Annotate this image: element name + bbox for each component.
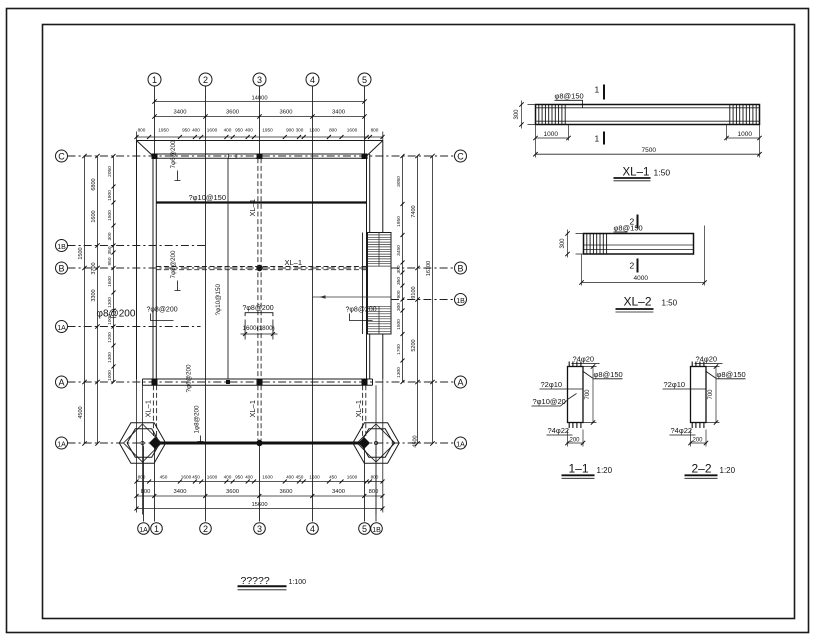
svg-text:3600: 3600 bbox=[226, 489, 239, 495]
svg-text:1:100: 1:100 bbox=[289, 579, 307, 586]
svg-text:1300: 1300 bbox=[107, 352, 113, 363]
svg-text:9100: 9100 bbox=[411, 286, 417, 298]
svg-text:1600: 1600 bbox=[309, 475, 320, 480]
svg-text:1700: 1700 bbox=[396, 344, 402, 355]
svg-text:7500: 7500 bbox=[642, 147, 657, 154]
svg-text:7φ6@200: 7φ6@200 bbox=[170, 140, 177, 168]
svg-text:950: 950 bbox=[182, 128, 190, 133]
svg-text:1:20: 1:20 bbox=[597, 466, 613, 475]
svg-text:800: 800 bbox=[141, 489, 151, 495]
svg-text:1:50: 1:50 bbox=[662, 299, 678, 308]
svg-text:1: 1 bbox=[152, 75, 157, 85]
svg-text:350: 350 bbox=[396, 277, 402, 285]
svg-text:300: 300 bbox=[514, 109, 520, 120]
svg-text:XL–1: XL–1 bbox=[354, 400, 363, 418]
svg-text:2–2: 2–2 bbox=[692, 462, 712, 476]
svg-text:?φ10@20: ?φ10@20 bbox=[533, 397, 566, 406]
svg-text:A: A bbox=[58, 378, 64, 388]
svg-text:700: 700 bbox=[585, 389, 591, 400]
svg-text:3: 3 bbox=[257, 75, 262, 85]
svg-text:1600: 1600 bbox=[262, 475, 273, 480]
svg-text:?????: ????? bbox=[241, 575, 270, 587]
svg-text:400: 400 bbox=[224, 475, 232, 480]
svg-text:3450: 3450 bbox=[396, 245, 402, 256]
svg-text:φ8@150: φ8@150 bbox=[594, 370, 623, 379]
svg-text:3600: 3600 bbox=[226, 110, 239, 116]
svg-text:16100: 16100 bbox=[426, 261, 432, 276]
svg-text:1:50: 1:50 bbox=[654, 168, 671, 178]
svg-text:7400: 7400 bbox=[411, 205, 417, 217]
svg-text:φ8@200: φ8@200 bbox=[97, 309, 136, 320]
svg-text:1000: 1000 bbox=[107, 370, 113, 381]
svg-text:450: 450 bbox=[192, 475, 200, 480]
svg-text:800: 800 bbox=[329, 128, 337, 133]
svg-text:XL–1: XL–1 bbox=[248, 400, 257, 418]
svg-text:6800: 6800 bbox=[91, 178, 97, 190]
svg-text:?2φ10: ?2φ10 bbox=[541, 380, 563, 389]
svg-text:800: 800 bbox=[371, 475, 379, 480]
svg-text:XL–1: XL–1 bbox=[285, 258, 303, 267]
svg-text:800: 800 bbox=[371, 128, 379, 133]
svg-text:1950: 1950 bbox=[158, 128, 169, 133]
svg-text:1–1: 1–1 bbox=[569, 462, 589, 476]
svg-text:3600: 3600 bbox=[280, 489, 293, 495]
svg-text:3300: 3300 bbox=[91, 289, 97, 301]
svg-text:φ8@150: φ8@150 bbox=[717, 370, 746, 379]
svg-text:3400: 3400 bbox=[174, 110, 187, 116]
svg-text:400: 400 bbox=[192, 128, 200, 133]
svg-text:1600: 1600 bbox=[347, 475, 358, 480]
svg-text:A: A bbox=[457, 378, 463, 388]
svg-text:XL–2: XL–2 bbox=[624, 295, 652, 309]
svg-text:1A: 1A bbox=[57, 325, 66, 332]
svg-text:1: 1 bbox=[154, 524, 159, 534]
svg-text:1A: 1A bbox=[139, 527, 148, 534]
svg-text:400: 400 bbox=[286, 475, 294, 480]
svg-text:950: 950 bbox=[235, 475, 243, 480]
svg-text:1600(1800): 1600(1800) bbox=[243, 325, 275, 332]
svg-text:7φ8@200: 7φ8@200 bbox=[170, 250, 177, 278]
svg-text:300: 300 bbox=[296, 128, 304, 133]
svg-text:15600: 15600 bbox=[251, 502, 267, 508]
svg-text:1000: 1000 bbox=[544, 131, 559, 138]
svg-text:1:20: 1:20 bbox=[720, 466, 736, 475]
svg-text:300: 300 bbox=[560, 238, 566, 249]
svg-text:2: 2 bbox=[630, 217, 635, 227]
svg-text:1500: 1500 bbox=[107, 210, 113, 221]
svg-text:1600: 1600 bbox=[207, 475, 218, 480]
svg-text:3600: 3600 bbox=[280, 110, 293, 116]
svg-text:1000: 1000 bbox=[107, 314, 113, 325]
svg-text:200: 200 bbox=[570, 438, 581, 444]
svg-text:1500: 1500 bbox=[396, 319, 402, 330]
svg-text:700: 700 bbox=[708, 389, 714, 400]
svg-text:14000: 14000 bbox=[251, 96, 267, 102]
svg-text:1A: 1A bbox=[57, 442, 66, 449]
svg-text:?2φ10: ?2φ10 bbox=[664, 380, 686, 389]
svg-text:B: B bbox=[457, 264, 463, 274]
svg-text:1600: 1600 bbox=[347, 128, 358, 133]
svg-text:1A: 1A bbox=[456, 442, 465, 449]
svg-text:350: 350 bbox=[107, 246, 113, 254]
svg-text:4500: 4500 bbox=[413, 435, 419, 447]
svg-text:XL–1: XL–1 bbox=[623, 167, 650, 179]
svg-text:?4φ22: ?4φ22 bbox=[548, 426, 570, 435]
svg-text:1: 1 bbox=[595, 85, 600, 95]
svg-text:5: 5 bbox=[362, 75, 367, 85]
svg-text:1600: 1600 bbox=[207, 128, 218, 133]
svg-text:1600: 1600 bbox=[181, 475, 192, 480]
svg-text:B: B bbox=[58, 264, 64, 274]
svg-text:1900: 1900 bbox=[107, 190, 113, 201]
svg-text:1500: 1500 bbox=[78, 247, 84, 259]
svg-text:3700: 3700 bbox=[91, 262, 97, 274]
svg-text:?4φ22: ?4φ22 bbox=[671, 426, 693, 435]
svg-text:4: 4 bbox=[310, 75, 315, 85]
svg-text:400: 400 bbox=[224, 128, 232, 133]
svg-text:?φ10@150: ?φ10@150 bbox=[215, 284, 222, 316]
svg-text:1: 1 bbox=[595, 134, 600, 144]
svg-text:3400: 3400 bbox=[332, 110, 345, 116]
svg-text:1B: 1B bbox=[456, 298, 465, 305]
svg-text:XL–1: XL–1 bbox=[144, 400, 153, 418]
svg-text:450: 450 bbox=[329, 475, 337, 480]
svg-text:5: 5 bbox=[362, 524, 367, 534]
svg-text:2: 2 bbox=[630, 261, 635, 271]
svg-text:800: 800 bbox=[138, 128, 146, 133]
svg-text:?φ10@150: ?φ10@150 bbox=[189, 193, 227, 202]
svg-text:1B: 1B bbox=[372, 527, 381, 534]
svg-text:3050: 3050 bbox=[396, 176, 402, 187]
svg-text:1600: 1600 bbox=[91, 210, 97, 222]
svg-text:3400: 3400 bbox=[174, 489, 187, 495]
svg-text:4000: 4000 bbox=[634, 275, 649, 282]
svg-text:1200: 1200 bbox=[107, 332, 113, 343]
svg-text:900: 900 bbox=[286, 128, 294, 133]
svg-text:1300: 1300 bbox=[396, 367, 402, 378]
svg-text:C: C bbox=[58, 152, 65, 162]
svg-text:950: 950 bbox=[235, 128, 243, 133]
svg-text:3400: 3400 bbox=[332, 489, 345, 495]
svg-text:400: 400 bbox=[245, 128, 253, 133]
svg-text:2: 2 bbox=[203, 75, 208, 85]
svg-text:1300: 1300 bbox=[107, 297, 113, 308]
svg-text:1B: 1B bbox=[57, 244, 66, 251]
svg-text:300: 300 bbox=[396, 303, 402, 311]
svg-text:1950: 1950 bbox=[396, 216, 402, 227]
svg-text:4500: 4500 bbox=[78, 406, 84, 418]
svg-text:?φ8@200: ?φ8@200 bbox=[243, 305, 274, 312]
svg-text:300: 300 bbox=[396, 265, 402, 273]
svg-text:950: 950 bbox=[107, 257, 113, 265]
svg-text:1600: 1600 bbox=[309, 128, 320, 133]
svg-text:450: 450 bbox=[296, 475, 304, 480]
svg-text:φ8@150: φ8@150 bbox=[555, 92, 584, 101]
svg-text:?4φ20: ?4φ20 bbox=[573, 355, 595, 364]
svg-text:800: 800 bbox=[369, 489, 379, 495]
svg-text:C: C bbox=[457, 152, 464, 162]
svg-text:1φ8@200: 1φ8@200 bbox=[194, 405, 201, 433]
svg-text:?φ6@200: ?φ6@200 bbox=[186, 364, 193, 392]
svg-text:5200: 5200 bbox=[411, 339, 417, 351]
svg-text:400: 400 bbox=[245, 475, 253, 480]
svg-text:?4φ20: ?4φ20 bbox=[696, 355, 718, 364]
svg-text:3: 3 bbox=[257, 524, 262, 534]
svg-text:900: 900 bbox=[396, 290, 402, 298]
svg-text:4: 4 bbox=[310, 524, 315, 534]
svg-text:2: 2 bbox=[203, 524, 208, 534]
svg-text:XL–1: XL–1 bbox=[248, 199, 257, 217]
svg-text:?φ8@200: ?φ8@200 bbox=[346, 307, 377, 314]
svg-text:1950: 1950 bbox=[262, 128, 273, 133]
svg-text:1600: 1600 bbox=[107, 276, 113, 287]
svg-text:450: 450 bbox=[160, 475, 168, 480]
svg-text:300: 300 bbox=[107, 232, 113, 240]
svg-text:1000: 1000 bbox=[738, 131, 753, 138]
svg-text:800: 800 bbox=[138, 475, 146, 480]
svg-text:2050: 2050 bbox=[107, 166, 113, 177]
svg-text:200: 200 bbox=[693, 438, 704, 444]
svg-text:?φ8@200: ?φ8@200 bbox=[147, 307, 178, 314]
